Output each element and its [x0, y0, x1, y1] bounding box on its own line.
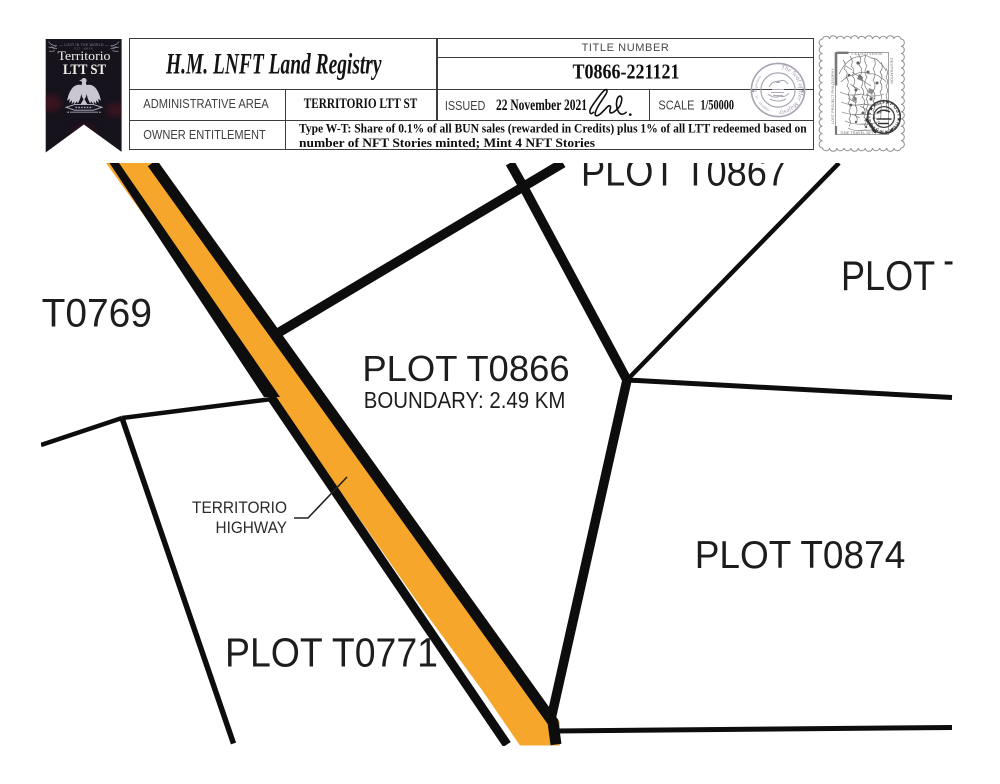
- svg-text:LOST PROJECT PHILOSOPHY: LOST PROJECT PHILOSOPHY: [831, 68, 835, 124]
- svg-text:≈ A LOOTVERSE: ≈ A LOOTVERSE: [851, 52, 883, 56]
- svg-text:TERRITORIO LTT ST: TERRITORIO LTT ST: [304, 96, 418, 112]
- svg-text:T0866-221121: T0866-221121: [573, 59, 680, 83]
- svg-text:OWNER ENTITLEMENT: OWNER ENTITLEMENT: [143, 127, 266, 142]
- svg-text:H.M. LNFT Land Registry: H.M. LNFT Land Registry: [165, 48, 382, 81]
- svg-text:TIME TRAVEL NFT: TIME TRAVEL NFT: [840, 131, 875, 135]
- svg-text:ADMINISTRATIVE AREA: ADMINISTRATIVE AREA: [143, 96, 269, 111]
- svg-text:The Seal of Her Majesty: The Seal of Her Majesty: [778, 64, 804, 116]
- svg-text:ISSUED: ISSUED: [445, 98, 486, 113]
- svg-text:Territorio: Territorio: [58, 49, 111, 63]
- svg-text:Type W-T: Share of 0.1% of all: Type W-T: Share of 0.1% of all BUN sales…: [299, 121, 807, 136]
- svg-text:LTT ST: LTT ST: [63, 62, 106, 78]
- svg-text:22 November 2021: 22 November 2021: [496, 97, 587, 114]
- svg-text:number of NFT Stories minted;: number of NFT Stories minted; Mint 4 NFT…: [299, 135, 595, 150]
- svg-text:DESTINATION: DESTINATION: [890, 58, 894, 84]
- svg-text:SCALE: SCALE: [658, 98, 694, 113]
- svg-text:— LOST IN THE WORLD —: — LOST IN THE WORLD —: [59, 43, 109, 47]
- svg-text:· regnum · et · imperium ·: · regnum · et · imperium ·: [753, 72, 773, 114]
- svg-text:TITLE NUMBER: TITLE NUMBER: [582, 42, 670, 54]
- svg-text:1/50000: 1/50000: [700, 98, 734, 114]
